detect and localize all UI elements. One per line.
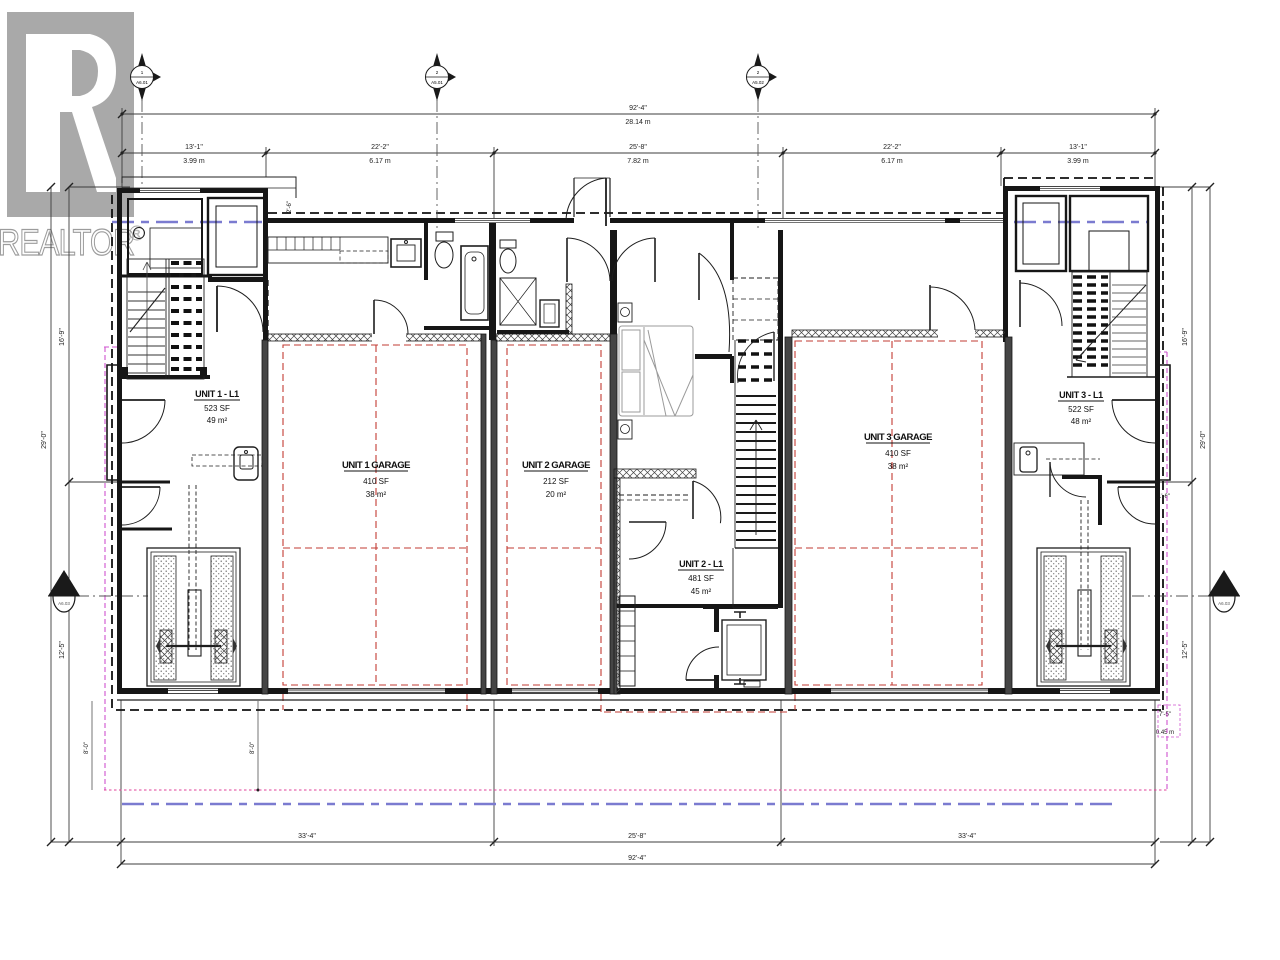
svg-text:29'-0": 29'-0" [41, 431, 48, 449]
svg-text:16'-9": 16'-9" [1182, 328, 1189, 346]
svg-text:22'-2": 22'-2" [883, 144, 901, 151]
svg-text:6.17 m: 6.17 m [369, 158, 391, 165]
svg-text:92'-4": 92'-4" [628, 855, 646, 862]
svg-text:6.17 m: 6.17 m [881, 158, 903, 165]
svg-text:33'-4": 33'-4" [958, 833, 976, 840]
svg-text:A6.03: A6.03 [58, 601, 70, 606]
svg-text:523 SF: 523 SF [204, 404, 230, 413]
svg-text:12'-5": 12'-5" [1182, 641, 1189, 659]
svg-text:25'-8": 25'-8" [628, 833, 646, 840]
svg-text:20 m²: 20 m² [546, 490, 567, 499]
svg-text:481 SF: 481 SF [688, 574, 714, 583]
svg-text:28.14 m: 28.14 m [625, 119, 650, 126]
svg-text:8'-0": 8'-0" [84, 742, 90, 754]
svg-text:92'-4": 92'-4" [629, 105, 647, 112]
svg-text:38 m²: 38 m² [888, 462, 909, 471]
svg-text:UNIT 2 GARAGE: UNIT 2 GARAGE [522, 460, 590, 471]
svg-text:410 SF: 410 SF [363, 477, 389, 486]
svg-text:3.99 m: 3.99 m [183, 158, 205, 165]
svg-text:7.82 m: 7.82 m [627, 158, 649, 165]
svg-text:A6.01: A6.01 [136, 80, 148, 85]
svg-text:REALTOR: REALTOR [0, 222, 134, 263]
svg-text:3.99 m: 3.99 m [1067, 158, 1089, 165]
svg-text:0.45 m: 0.45 m [1156, 730, 1174, 736]
svg-text:522 SF: 522 SF [1068, 405, 1094, 414]
svg-text:A5.02: A5.02 [752, 80, 764, 85]
svg-text:2'-6": 2'-6" [287, 201, 293, 213]
svg-text:13'-1": 13'-1" [185, 144, 203, 151]
svg-text:410 SF: 410 SF [885, 449, 911, 458]
svg-text:45 m²: 45 m² [691, 587, 712, 596]
svg-text:8'-0": 8'-0" [250, 742, 256, 754]
svg-text:16'-9": 16'-9" [59, 328, 66, 346]
svg-text:49 m²: 49 m² [207, 416, 228, 425]
svg-text:UNIT 3 - L1: UNIT 3 - L1 [1059, 390, 1103, 400]
svg-text:7'-5": 7'-5" [1159, 712, 1171, 718]
svg-text:25'-8": 25'-8" [629, 144, 647, 151]
svg-text:48 m²: 48 m² [1071, 417, 1092, 426]
svg-text:UNIT 3 GARAGE: UNIT 3 GARAGE [864, 432, 932, 443]
svg-text:29'-0": 29'-0" [1200, 431, 1207, 449]
svg-text:38 m²: 38 m² [366, 490, 387, 499]
svg-text:UNIT 1 - L1: UNIT 1 - L1 [195, 389, 239, 399]
svg-text:A5.01: A5.01 [431, 80, 443, 85]
svg-text:UNIT 1 GARAGE: UNIT 1 GARAGE [342, 460, 410, 471]
svg-text:12'-5": 12'-5" [59, 641, 66, 659]
svg-text:212 SF: 212 SF [543, 477, 569, 486]
svg-text:22'-2": 22'-2" [371, 144, 389, 151]
svg-text:33'-4": 33'-4" [298, 833, 316, 840]
svg-text:A6.03: A6.03 [1218, 601, 1230, 606]
svg-text:13'-1": 13'-1" [1069, 144, 1087, 151]
svg-text:UNIT 2 - L1: UNIT 2 - L1 [679, 559, 723, 569]
